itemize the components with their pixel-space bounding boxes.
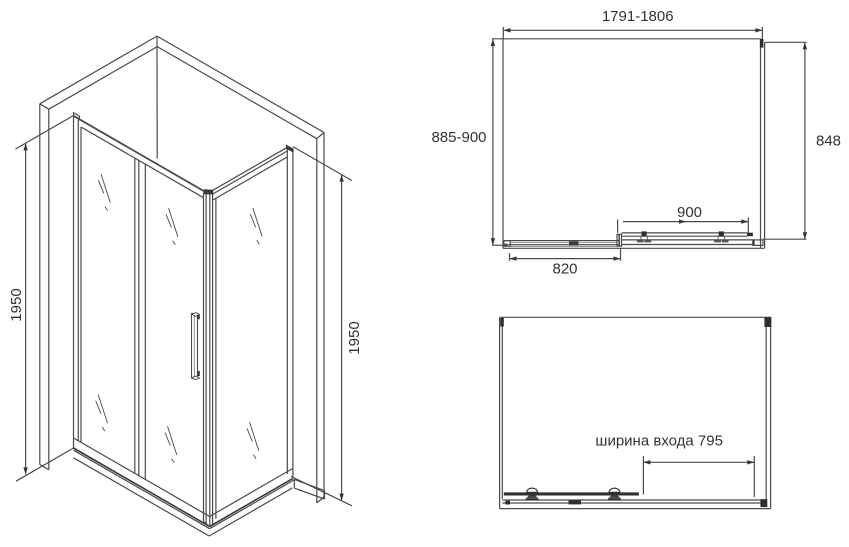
svg-text:1950: 1950 (8, 288, 25, 321)
svg-text:1791-1806: 1791-1806 (602, 8, 674, 25)
svg-text:848: 848 (816, 133, 841, 150)
svg-text:1950: 1950 (346, 321, 363, 354)
svg-text:885-900: 885-900 (431, 129, 486, 146)
svg-text:900: 900 (677, 204, 702, 221)
svg-text:820: 820 (552, 260, 577, 277)
svg-text:ширина входа 795: ширина входа 795 (595, 433, 723, 450)
